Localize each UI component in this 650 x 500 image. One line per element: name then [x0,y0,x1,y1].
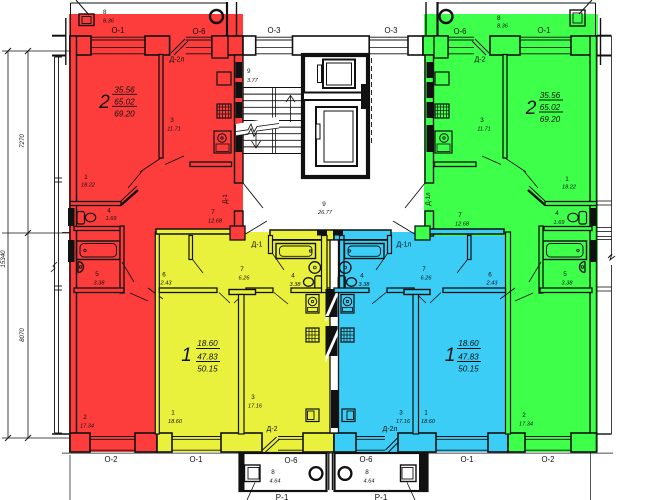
svg-text:2: 2 [525,98,537,119]
svg-text:12.68: 12.68 [455,222,470,228]
svg-text:О-3: О-3 [385,26,398,35]
svg-text:Д-2: Д-2 [267,426,278,433]
svg-text:1.69: 1.69 [106,216,117,222]
svg-text:3.38: 3.38 [94,281,106,287]
svg-text:47.83: 47.83 [458,353,479,362]
svg-text:6.26: 6.26 [239,276,251,282]
svg-text:65.02: 65.02 [540,103,561,112]
svg-text:18.60: 18.60 [421,419,436,425]
svg-text:18.22: 18.22 [81,183,96,189]
svg-text:8.36: 8.36 [497,24,509,30]
svg-text:3.38: 3.38 [290,282,302,288]
svg-text:7: 7 [458,212,462,219]
svg-text:6: 6 [488,272,492,279]
svg-text:47.83: 47.83 [197,353,218,362]
svg-text:О-1: О-1 [461,455,474,464]
svg-text:1.69: 1.69 [554,220,565,226]
svg-text:18.22: 18.22 [562,185,577,191]
svg-text:17.34: 17.34 [80,424,94,430]
svg-text:6.26: 6.26 [421,276,433,282]
svg-text:1: 1 [181,345,192,366]
svg-text:1: 1 [171,410,175,417]
svg-text:8: 8 [103,9,107,16]
svg-text:5: 5 [563,271,567,278]
svg-text:50.15: 50.15 [458,365,479,374]
svg-text:О-1: О-1 [190,455,203,464]
svg-text:4: 4 [107,208,111,215]
svg-text:3.38: 3.38 [359,282,371,288]
svg-text:1: 1 [424,410,428,417]
svg-text:4: 4 [360,273,364,280]
svg-text:Д-1: Д-1 [222,194,229,204]
svg-text:Д-2: Д-2 [475,57,486,64]
svg-text:5: 5 [95,271,99,278]
svg-text:2.43: 2.43 [160,281,173,287]
svg-text:О-2: О-2 [542,455,555,464]
svg-text:Д-1: Д-1 [252,242,263,249]
svg-text:3: 3 [480,117,484,124]
svg-text:8070: 8070 [19,328,26,342]
svg-text:8: 8 [497,15,501,22]
svg-text:2: 2 [522,412,526,419]
svg-text:3: 3 [170,117,174,124]
svg-text:8: 8 [365,469,369,476]
svg-text:7: 7 [422,266,426,273]
svg-text:9: 9 [247,68,251,75]
svg-text:2: 2 [98,92,110,113]
svg-text:1: 1 [565,176,569,183]
svg-text:1: 1 [445,345,456,366]
svg-text:11.71: 11.71 [477,127,491,133]
svg-text:15340: 15340 [0,250,7,268]
svg-text:О-1: О-1 [112,26,125,35]
svg-text:4.64: 4.64 [364,479,375,485]
svg-text:6: 6 [162,272,166,279]
svg-text:69.20: 69.20 [540,115,561,124]
svg-text:2.43: 2.43 [486,281,499,287]
svg-text:65.02: 65.02 [114,98,135,107]
svg-text:4: 4 [291,273,295,280]
svg-text:8.36: 8.36 [103,19,115,25]
svg-text:О-2: О-2 [105,455,118,464]
svg-text:17.34: 17.34 [519,422,533,428]
svg-text:О-6: О-6 [193,27,206,36]
svg-text:12.68: 12.68 [208,219,223,225]
svg-text:35.56: 35.56 [114,86,135,95]
svg-text:50.15: 50.15 [197,365,218,374]
svg-text:1: 1 [84,174,88,181]
svg-text:4: 4 [555,210,559,217]
svg-text:7270: 7270 [19,134,26,148]
svg-text:8: 8 [271,469,275,476]
svg-text:18.60: 18.60 [197,339,218,348]
svg-text:26.77: 26.77 [317,210,333,216]
svg-text:Д-1л: Д-1л [425,192,432,206]
svg-text:7: 7 [240,266,244,273]
svg-text:4.64: 4.64 [270,479,281,485]
svg-text:3.77: 3.77 [247,78,259,84]
svg-text:Р-1: Р-1 [276,493,289,500]
svg-text:3.38: 3.38 [562,281,574,287]
svg-text:О-6: О-6 [360,455,373,464]
svg-text:3: 3 [399,410,403,417]
svg-text:О-6: О-6 [285,456,298,465]
svg-text:17.16: 17.16 [396,419,411,425]
svg-text:18.60: 18.60 [168,419,183,425]
svg-text:3: 3 [251,394,255,401]
svg-text:69.20: 69.20 [114,110,135,119]
svg-text:2: 2 [83,414,87,421]
svg-text:О-3: О-3 [268,26,281,35]
svg-text:Д-2л: Д-2л [169,57,184,64]
svg-text:18.60: 18.60 [458,339,479,348]
svg-text:9: 9 [322,201,326,208]
svg-text:17.16: 17.16 [248,404,263,410]
svg-text:7: 7 [211,209,215,216]
svg-text:О-1: О-1 [538,26,551,35]
svg-text:О-6: О-6 [454,27,467,36]
svg-text:Д-1л: Д-1л [396,242,411,249]
svg-text:11.71: 11.71 [167,127,181,133]
svg-text:Д-2л: Д-2л [382,426,397,433]
svg-text:Р-1: Р-1 [375,493,388,500]
svg-text:35.56: 35.56 [540,91,561,100]
